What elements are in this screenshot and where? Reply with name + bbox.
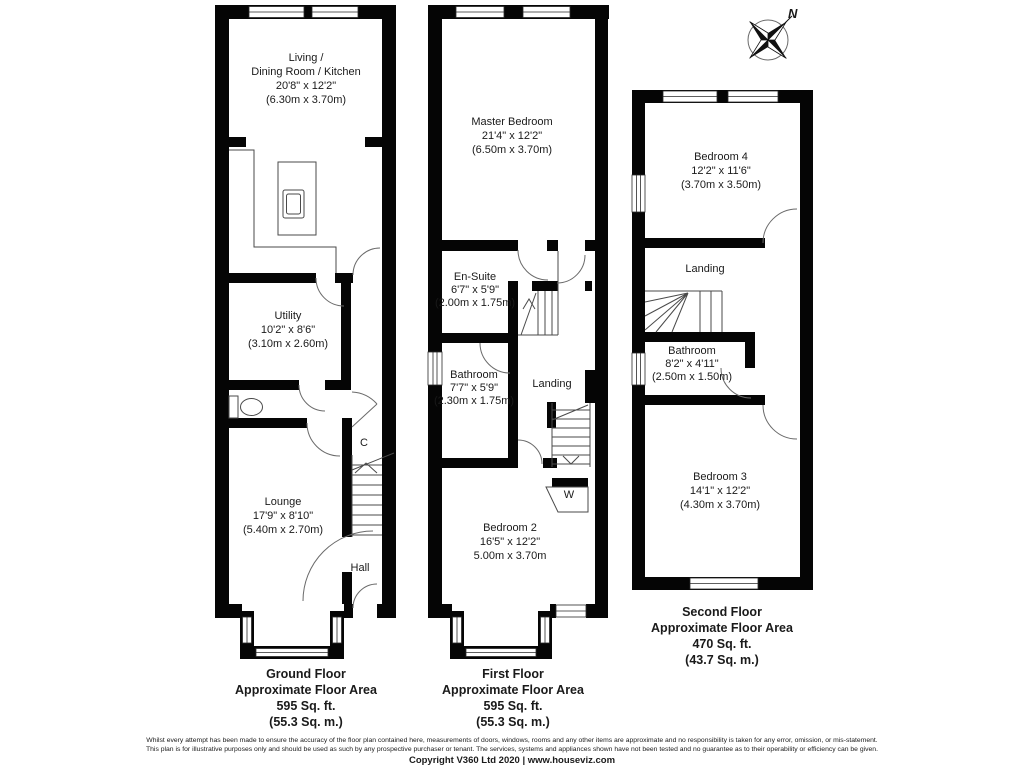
room-dims-imperial: 21'4" x 12'2" xyxy=(471,129,552,143)
ground-floor-doors xyxy=(299,248,380,608)
room-dims-imperial: 17'9" x 8'10" xyxy=(243,509,323,523)
room-label-living-dining-kitchen: Living / Dining Room / Kitchen 20'8" x 1… xyxy=(251,51,360,107)
floor-area-sqm: (55.3 Sq. m.) xyxy=(235,714,377,730)
floor-title: First Floor xyxy=(442,666,584,682)
room-dims-imperial: 20'8" x 12'2" xyxy=(251,79,360,93)
toilet-icon xyxy=(229,396,263,418)
compass-icon xyxy=(748,16,792,60)
room-dims-metric: (2.50m x 1.50m) xyxy=(652,371,732,384)
room-name: Hall xyxy=(351,561,370,575)
room-label-master-bedroom: Master Bedroom 21'4" x 12'2" (6.50m x 3.… xyxy=(471,115,552,157)
room-dims-metric: (3.70m x 3.50m) xyxy=(681,178,761,192)
room-name: W xyxy=(564,488,574,502)
room-name: Dining Room / Kitchen xyxy=(251,65,360,79)
floor-title: Second Floor xyxy=(651,604,793,620)
room-name: Bedroom 3 xyxy=(680,470,760,484)
room-name: Bedroom 4 xyxy=(681,150,761,164)
room-label-bedroom3: Bedroom 3 14'1" x 12'2" (4.30m x 3.70m) xyxy=(680,470,760,512)
copyright-line: Copyright V360 Ltd 2020 | www.houseviz.c… xyxy=(0,755,1024,767)
room-dims-metric: (3.10m x 2.60m) xyxy=(248,337,328,351)
room-name: C xyxy=(360,436,368,450)
room-name: Bathroom xyxy=(434,369,514,382)
floor-area-sqm: (55.3 Sq. m.) xyxy=(442,714,584,730)
floor-title: Ground Floor xyxy=(235,666,377,682)
room-dims-metric: (6.30m x 3.70m) xyxy=(251,93,360,107)
room-label-lounge: Lounge 17'9" x 8'10" (5.40m x 2.70m) xyxy=(243,495,323,537)
room-label-utility: Utility 10'2" x 8'6" (3.10m x 2.60m) xyxy=(248,309,328,351)
room-dims-imperial: 14'1" x 12'2" xyxy=(680,484,760,498)
room-name: En-Suite xyxy=(435,271,515,284)
room-label-wardrobe: W xyxy=(564,488,574,502)
room-label-landing-first: Landing xyxy=(532,377,571,391)
room-name: Bathroom xyxy=(652,345,732,358)
room-dims-imperial: 12'2" x 11'6" xyxy=(681,164,761,178)
room-label-bathroom-first: Bathroom 7'7" x 5'9" (2.30m x 1.75m) xyxy=(434,369,514,408)
room-name: Master Bedroom xyxy=(471,115,552,129)
first-floor-stairs-up xyxy=(518,251,558,335)
room-name: Living / xyxy=(251,51,360,65)
first-floor-stairs-down xyxy=(552,403,590,467)
floor-area-sqft: 595 Sq. ft. xyxy=(235,698,377,714)
room-dims-imperial: 16'5" x 12'2" xyxy=(474,535,547,549)
room-dims-metric: (4.30m x 3.70m) xyxy=(680,498,760,512)
room-dims-metric: (2.00m x 1.75m) xyxy=(435,297,515,310)
floor-area-sqft: 470 Sq. ft. xyxy=(651,636,793,652)
footer: Whilst every attempt has been made to en… xyxy=(0,736,1024,767)
disclaimer-line1: Whilst every attempt has been made to en… xyxy=(0,736,1024,745)
floor-area-sqft: 595 Sq. ft. xyxy=(442,698,584,714)
room-dims-metric: 5.00m x 3.70m xyxy=(474,549,547,563)
compass-north-label: N xyxy=(788,6,797,21)
room-dims-imperial: 8'2" x 4'11" xyxy=(652,358,732,371)
room-label-bedroom2: Bedroom 2 16'5" x 12'2" 5.00m x 3.70m xyxy=(474,521,547,563)
room-dims-metric: (6.50m x 3.70m) xyxy=(471,143,552,157)
room-name: Utility xyxy=(248,309,328,323)
room-label-ensuite: En-Suite 6'7" x 5'9" (2.00m x 1.75m) xyxy=(435,271,515,310)
room-label-hall: Hall xyxy=(351,561,370,575)
room-dims-metric: (2.30m x 1.75m) xyxy=(434,395,514,408)
floor-area-sqm: (43.7 Sq. m.) xyxy=(651,652,793,668)
floor-area-caption: Approximate Floor Area xyxy=(442,682,584,698)
room-name: Landing xyxy=(532,377,571,391)
room-label-cupboard: C xyxy=(360,436,368,450)
room-dims-metric: (5.40m x 2.70m) xyxy=(243,523,323,537)
first-floor-area-label: First Floor Approximate Floor Area 595 S… xyxy=(442,666,584,730)
floor-area-caption: Approximate Floor Area xyxy=(651,620,793,636)
room-dims-imperial: 7'7" x 5'9" xyxy=(434,382,514,395)
room-dims-imperial: 10'2" x 8'6" xyxy=(248,323,328,337)
floorplan-canvas: N Living / Dining Room / Kitchen 20'8" x… xyxy=(0,0,1024,768)
disclaimer-line2: This plan is for illustrative purposes o… xyxy=(0,745,1024,754)
room-label-landing-second: Landing xyxy=(685,262,724,276)
room-label-bathroom-second: Bathroom 8'2" x 4'11" (2.50m x 1.50m) xyxy=(652,345,732,384)
ground-floor-area-label: Ground Floor Approximate Floor Area 595 … xyxy=(235,666,377,730)
second-floor-area-label: Second Floor Approximate Floor Area 470 … xyxy=(651,604,793,668)
room-label-bedroom4: Bedroom 4 12'2" x 11'6" (3.70m x 3.50m) xyxy=(681,150,761,192)
room-dims-imperial: 6'7" x 5'9" xyxy=(435,284,515,297)
second-floor-stairs xyxy=(645,291,722,332)
room-name: Landing xyxy=(685,262,724,276)
room-name: Lounge xyxy=(243,495,323,509)
kitchen-sink-icon xyxy=(283,190,304,218)
room-name: Bedroom 2 xyxy=(474,521,547,535)
floor-area-caption: Approximate Floor Area xyxy=(235,682,377,698)
